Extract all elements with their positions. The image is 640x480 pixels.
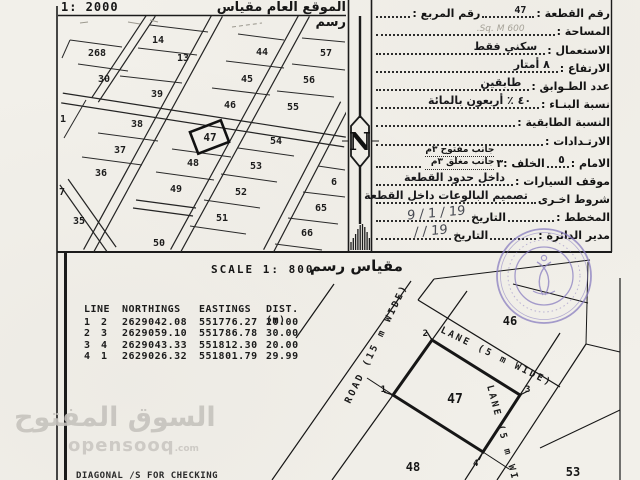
planner-label: المخطط : [556,211,610,224]
corner-label-1: 1 [381,385,386,395]
dotted-leader: طابقين [376,86,529,91]
table-row: 232629059.10551786.7830.00 [84,328,320,340]
table-cell: 3 [84,340,101,351]
side-setback-options: جانب مفتوح ٣م جانب مغلق ٣م [425,145,494,170]
scanned-land-survey-document: N [0,0,640,480]
map-plot-number: 50 [153,238,165,249]
plot-number-value: 47 [514,5,526,16]
form-row-floors: عدد الطـوابق : طابقين [372,75,610,93]
floors-label: عدد الطـوابق : [531,80,610,93]
scale-label-arabic: مقياس رسم [310,257,403,275]
form-row-use: الاستعمال : سكني فقط [372,38,610,56]
table-cell: 20.00 [266,317,320,328]
map-plot-number: 44 [256,47,268,58]
use-value: سكني فقط [474,40,538,53]
map-plot-number: 7 [59,187,65,198]
table-cell: 3 [101,328,122,339]
table-cell: 1 [84,317,101,328]
drawing-plot-number: 47 [447,392,463,407]
table-cell: 551786.78 [199,328,266,339]
form-row-parking: موقف السيارات : داخل حدود القطعة [372,170,610,188]
dotted-leader: سكني فقط [376,50,545,55]
map-plot-number: 36 [95,168,107,179]
front-value: ٥ [558,153,565,166]
dotted-leader [508,217,554,222]
table-header-cell: LINE [84,304,122,315]
map-plot-number: 268 [88,48,106,59]
map-plot-number: 55 [287,102,299,113]
table-cell: 551812.30 [199,340,266,351]
form-row-plot-number: رقم القطعة : 47 رقم المربع : [372,2,610,20]
dotted-leader [490,235,536,240]
table-cell: 4 [84,351,101,362]
map-scale-label: 1: 2000 [61,0,119,14]
director-label: مدير الدائرة : [538,229,610,242]
form-row-planner: المخطط : التاريخ 19 / 1 / 9 [372,206,610,224]
map-plot-number: 54 [270,136,282,147]
dotted-leader: ٤٠ ٪ أربعون بالمائة [376,104,539,109]
planner-date-handwritten: 19 / 1 / 9 [407,203,465,223]
map-plot-number: 37 [114,145,126,156]
table-header-row: LINENORTHINGSEASTINGSDIST. (m) [84,304,320,316]
build-ratio-value: ٤٠ ٪ أربعون بالمائة [428,94,531,107]
back-label: الخلف : [503,157,545,170]
map-plot-number: 38 [131,119,143,130]
drawing-neighbor-left: 48 [406,460,420,474]
form-row-build-ratio: نسبة البنـاء : ٤٠ ٪ أربعون بالمائة [372,93,610,111]
director-date-handwritten: 19 / / [414,223,448,241]
map-plot-number: 14 [152,35,164,46]
map-plot-number: 35 [73,216,85,227]
form-row-conditions: شروط اخـرى تصميم البالوعات داخل القطعة [372,188,610,206]
table-cell: 30.00 [266,328,320,339]
dotted-leader: داخل حدود القطعة [376,181,513,186]
dotted-leader: ٥ [547,163,569,168]
table-header-cell: NORTHINGS [122,304,199,315]
lane-right-label: LANE (5 m WIDE) [484,384,527,480]
map-plot-number: 46 [224,100,236,111]
square-number-label: رقم المربع : [412,7,480,20]
table-cell: 551801.79 [199,351,266,362]
height-label: الارتفاع : [560,62,610,75]
survey-coordinates-table: LINENORTHINGSEASTINGSDIST. (m)122629042.… [84,304,320,363]
dotted-leader [376,141,543,146]
form-row-setbacks: الارتـدادات : [372,129,610,147]
side-closed-option: جانب مغلق ٣م [425,157,494,169]
build-ratio-label: نسبة البنـاء : [541,98,610,111]
map-plot-number: 30 [98,74,110,85]
use-label: الاستعمال : [547,44,610,57]
table-cell: 2 [101,317,122,328]
front-label: الامام : [571,157,610,170]
table-row: 342629043.33551812.3020.00 [84,340,320,352]
form-row-floor-ratio: النسبة الطابقية : [372,111,610,129]
map-plot-number: 53 [250,161,262,172]
plot-number-label: رقم القطعة : [536,7,610,20]
height-value: ٨ أمتار [514,58,550,71]
floor-ratio-label: النسبة الطابقية : [517,116,610,129]
dotted-leader [376,163,421,168]
map-plot-number: 56 [303,75,315,86]
table-cell: 4 [101,340,122,351]
form-row-front-back: الامام : ٥ الخلف : ٣ جانب مفتوح ٣م جانب … [372,148,610,170]
dotted-leader [376,13,410,18]
map-plot-number: 13 [177,53,189,64]
north-hatch-marks [351,224,369,250]
table-cell: 2629026.32 [122,351,199,362]
table-header-cell: EASTINGS [199,304,266,315]
dotted-leader: ٨ أمتار [376,68,558,73]
table-cell: 1 [101,351,122,362]
floors-value: طابقين [480,76,521,89]
form-row-height: الارتفاع : ٨ أمتار [372,57,610,75]
table-cell: 2629042.08 [122,317,199,328]
map-plot-number: 1 [60,114,66,125]
table-cell: 2629043.33 [122,340,199,351]
dotted-leader: تصميم البالوعات داخل القطعة [376,199,536,204]
dotted-leader: 600 Sq. M. [376,31,555,36]
map-plot-number: 57 [320,48,332,59]
dotted-leader: 47 [482,13,534,18]
plot-details-form: رقم القطعة : 47 رقم المربع : المساحة : 6… [372,2,610,252]
conditions-label: شروط اخـرى [538,193,610,206]
date-label: التاريخ [471,211,506,224]
footer-note: DIAGONAL /S FOR CHECKING [76,471,218,480]
table-cell: 2 [84,328,101,339]
plot-drawing-lines [272,260,620,480]
map-plot-number: 52 [235,187,247,198]
map-plot-number: 47 [203,131,216,144]
north-letter: N [349,127,371,156]
table-row: 122629042.08551776.2720.00 [84,317,320,329]
map-title: الموقع العام مقياس رسم [200,0,346,30]
map-plot-number: 48 [187,158,199,169]
table-row: 412629026.32551801.7929.99 [84,351,320,363]
map-plot-number: 65 [315,203,327,214]
table-cell: 20.00 [266,340,320,351]
table-cell: 2629059.10 [122,328,199,339]
form-row-area: المساحة : 600 Sq. M. [372,20,610,38]
area-label: المساحة : [557,25,610,38]
dotted-leader: 19 / / [376,235,451,240]
dotted-leader: 19 / 1 / 9 [376,217,469,222]
corner-label-2: 2 [423,329,428,339]
date-label-2: التاريخ [453,229,488,242]
corner-label-3: 3 [525,385,530,395]
scale-label-english: SCALE 1: 800 [211,263,314,276]
map-plot-number: 49 [170,184,182,195]
side-open-option: جانب مفتوح ٣م [425,145,494,157]
parking-value: داخل حدود القطعة [404,171,505,184]
area-value: 600 Sq. M. [477,24,525,34]
back-value: ٣ [496,157,503,170]
map-plot-number: 66 [301,228,313,239]
map-plot-number: 51 [216,213,228,224]
drawing-neighbor-right: 53 [566,465,580,479]
corner-label-4: 4 [473,459,479,469]
drawing-neighbor-top: 46 [503,314,517,328]
conditions-value: تصميم البالوعات داخل القطعة [364,189,528,202]
form-row-director: مدير الدائرة : التاريخ 19 / / [372,224,610,242]
dotted-leader [376,122,515,127]
map-plot-number: 45 [241,74,253,85]
table-cell: 551776.27 [199,317,266,328]
map-plot-number: 6 [331,177,337,188]
table-cell: 29.99 [266,351,320,362]
map-plot-number: 39 [151,89,163,100]
setbacks-label: الارتـدادات : [545,135,610,148]
parking-label: موقف السيارات : [515,175,610,188]
